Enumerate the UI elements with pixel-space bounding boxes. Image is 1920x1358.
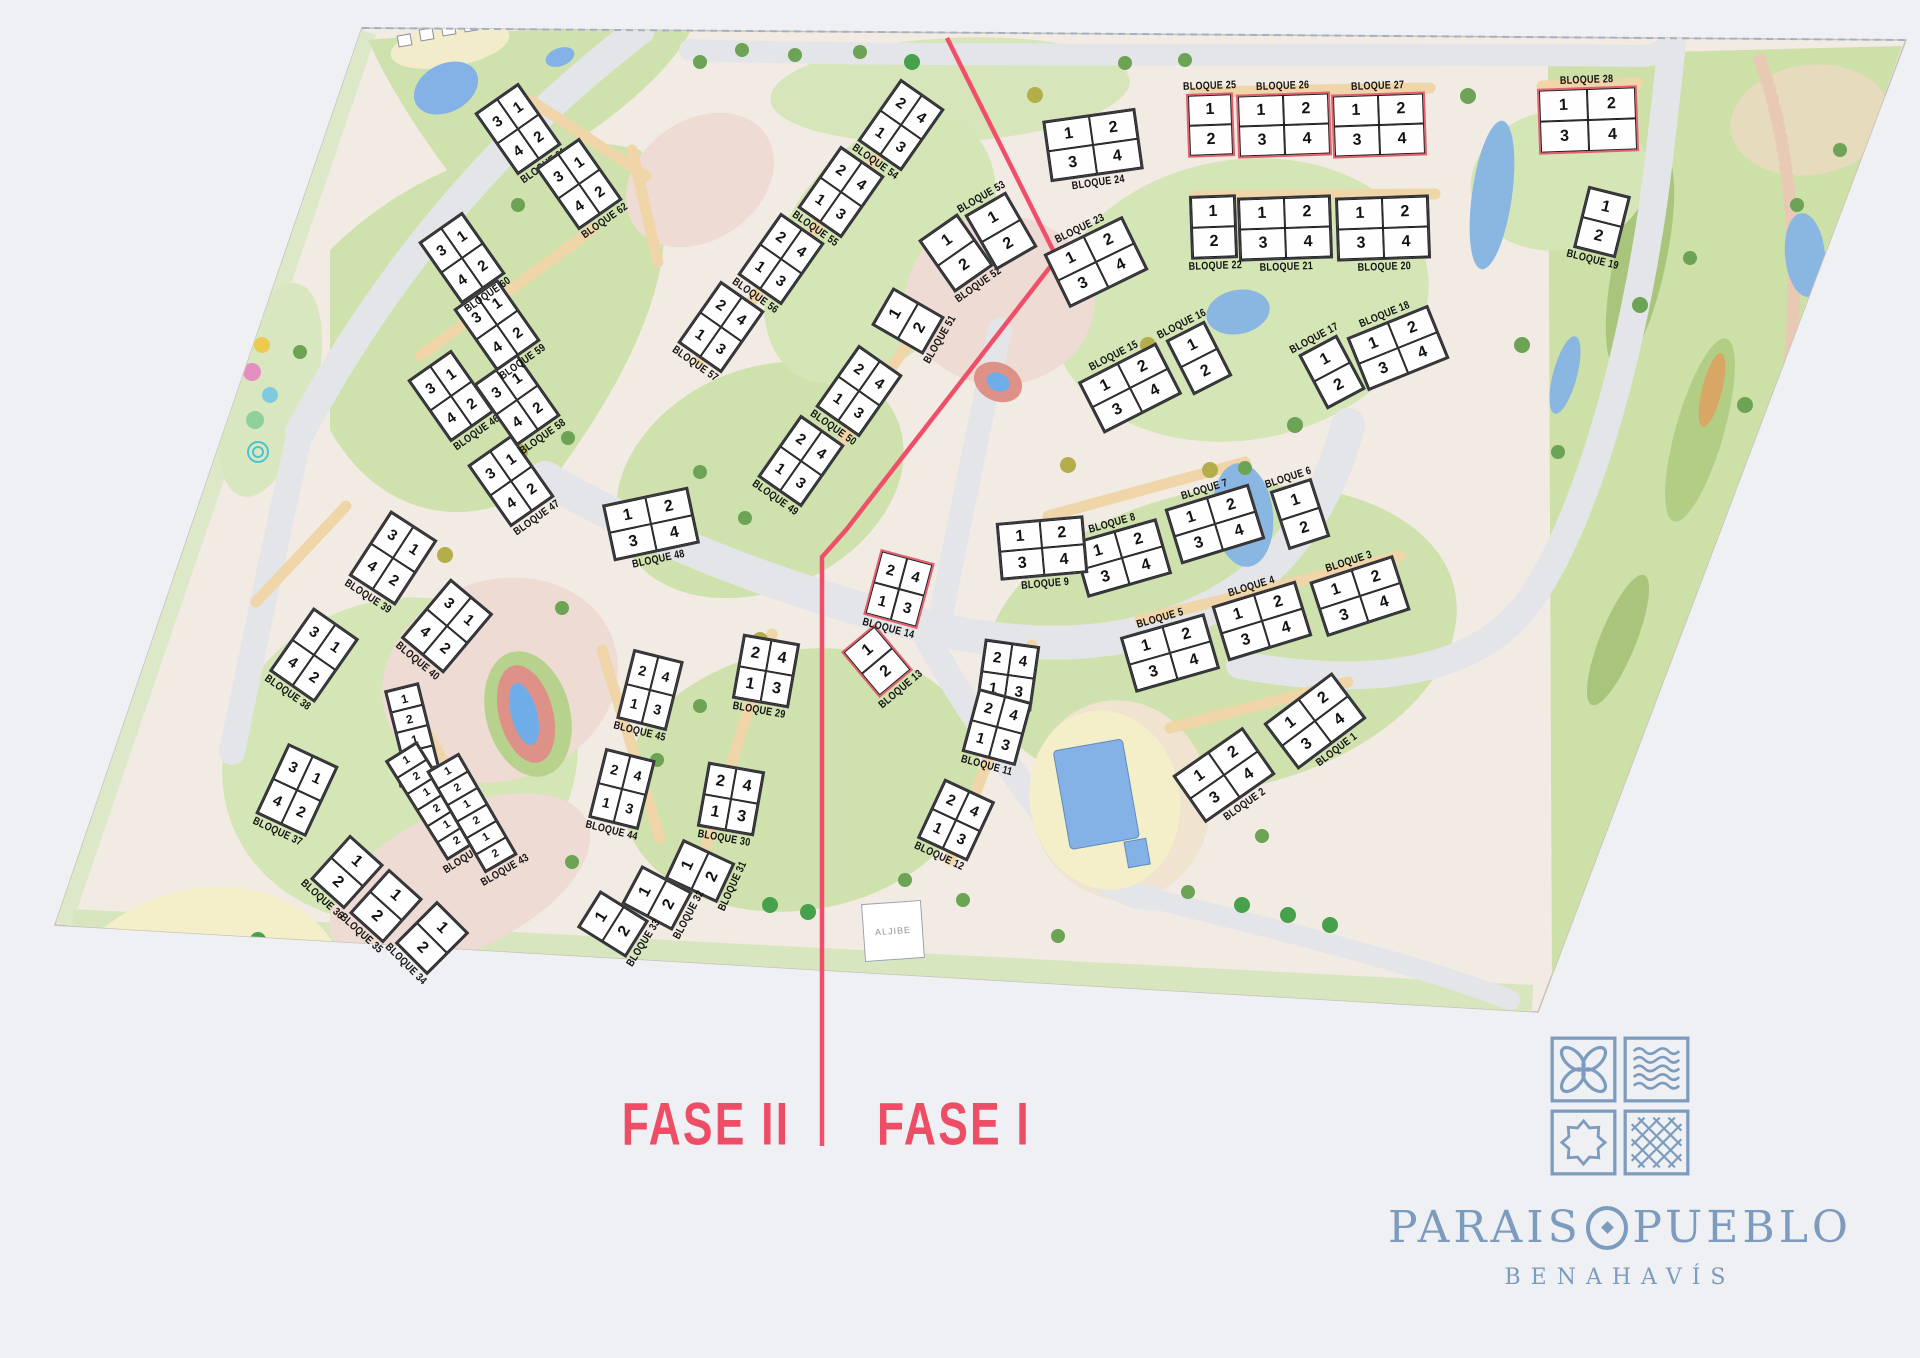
- lattice-tile-icon: [1623, 1109, 1690, 1176]
- bloque-label: BLOQUE 25: [1182, 79, 1236, 93]
- unit-2: 2: [1378, 93, 1424, 125]
- unit-4: 4: [1285, 226, 1331, 258]
- unit-3: 3: [1334, 125, 1380, 157]
- bloque-11[interactable]: 2413BLOQUE 11: [961, 688, 1032, 766]
- bloque-54[interactable]: 2413BLOQUE 54: [857, 78, 945, 171]
- bloque-5[interactable]: 1234BLOQUE 5: [1120, 613, 1221, 693]
- unit-3: 3: [726, 799, 758, 834]
- bloque-9[interactable]: 1234BLOQUE 9: [996, 515, 1089, 580]
- bloque-47[interactable]: 3142BLOQUE 47: [467, 434, 555, 527]
- unit-1: 1: [1190, 196, 1234, 227]
- bloque-12[interactable]: 2413BLOQUE 12: [917, 778, 996, 861]
- masterplan-canvas: 1234BLOQUE 11234BLOQUE 21234BLOQUE 31234…: [0, 0, 1920, 1358]
- unit-2: 2: [1192, 226, 1236, 257]
- aljibe-building: ALJIBE: [861, 900, 925, 962]
- unit-4: 4: [731, 768, 763, 803]
- bloque-2[interactable]: 1234BLOQUE 2: [1172, 727, 1276, 824]
- unit-2: 2: [1284, 196, 1330, 228]
- bloque-40[interactable]: 3142BLOQUE 40: [400, 578, 493, 674]
- bloque-4[interactable]: 1234BLOQUE 4: [1211, 580, 1312, 661]
- bloque-28[interactable]: 1234BLOQUE 28: [1537, 85, 1639, 154]
- bloque-50[interactable]: 2413BLOQUE 50: [815, 344, 903, 437]
- bloque-38[interactable]: 3142BLOQUE 38: [269, 607, 360, 703]
- unit-1: 1: [1539, 89, 1588, 122]
- bloque-18[interactable]: 1234BLOQUE 18: [1346, 305, 1449, 392]
- unit-1: 1: [1187, 94, 1231, 125]
- bloque-3[interactable]: 1234BLOQUE 3: [1309, 555, 1411, 637]
- unit-3: 3: [1540, 120, 1589, 153]
- unit-1: 1: [1333, 95, 1379, 127]
- bloque-39[interactable]: 3142BLOQUE 39: [348, 510, 437, 606]
- bloque-26[interactable]: 1234BLOQUE 26: [1236, 91, 1332, 158]
- brand-name-right: PUEBLO: [1632, 1202, 1852, 1253]
- bloque-44[interactable]: 2413BLOQUE 44: [588, 748, 656, 830]
- brand-wordmark: PARAISPUEBLO: [1388, 1202, 1852, 1253]
- unit-4: 4: [1383, 226, 1429, 258]
- bloque-25[interactable]: 12BLOQUE 25: [1185, 92, 1234, 158]
- bloque-1[interactable]: 1234BLOQUE 1: [1263, 672, 1367, 770]
- bloque-30[interactable]: 2413BLOQUE 30: [697, 761, 766, 836]
- unit-2: 2: [1189, 124, 1233, 155]
- unit-4: 4: [1284, 123, 1330, 155]
- bloque-14[interactable]: 2413BLOQUE 14: [863, 549, 935, 629]
- fase2-label: FASE II: [622, 1090, 791, 1159]
- unit-4: 4: [1008, 644, 1038, 678]
- unit-4: 4: [1379, 123, 1425, 155]
- unit-4: 4: [1093, 139, 1142, 174]
- unit-3: 3: [1000, 548, 1044, 579]
- fase1-label: FASE I: [877, 1090, 1031, 1159]
- bloque-label: BLOQUE 26: [1256, 79, 1310, 93]
- unit-4: 4: [766, 640, 798, 675]
- unit-3: 3: [1240, 228, 1286, 260]
- bloque-60[interactable]: 3142BLOQUE 60: [418, 211, 506, 304]
- bloque-24[interactable]: 1234BLOQUE 24: [1042, 108, 1144, 182]
- unit-2: 2: [1382, 196, 1428, 228]
- bloque-6[interactable]: 12BLOQUE 6: [1269, 478, 1330, 551]
- bloque-7[interactable]: 1234BLOQUE 7: [1164, 483, 1265, 564]
- brand-o-icon: [1586, 1206, 1629, 1250]
- bloque-45[interactable]: 2413BLOQUE 45: [616, 649, 684, 731]
- unit-3: 3: [1239, 125, 1285, 157]
- brand-subtitle: BENAHAVÍS: [1388, 1265, 1852, 1290]
- bloque-label: BLOQUE 28: [1560, 73, 1614, 87]
- bloque-29[interactable]: 2413BLOQUE 29: [732, 633, 801, 708]
- bloque-21[interactable]: 1234BLOQUE 21: [1237, 194, 1333, 261]
- bloque-15[interactable]: 1234BLOQUE 15: [1078, 342, 1183, 434]
- unit-4: 4: [1588, 118, 1637, 151]
- aljibe-label: ALJIBE: [875, 925, 912, 937]
- bloque-48[interactable]: 1234BLOQUE 48: [602, 486, 700, 561]
- brand-logo: PARAISPUEBLO BENAHAVÍS: [1388, 1036, 1852, 1290]
- unit-4: 4: [1042, 544, 1086, 575]
- bloque-27[interactable]: 1234BLOQUE 27: [1331, 91, 1427, 158]
- petal-tile-icon: [1550, 1036, 1617, 1103]
- bloque-51[interactable]: 12BLOQUE 51: [871, 287, 945, 355]
- bloque-37[interactable]: 3142BLOQUE 37: [255, 743, 339, 837]
- unit-2: 2: [1040, 517, 1084, 548]
- bloque-23[interactable]: 1234BLOQUE 23: [1043, 216, 1148, 309]
- logo-tiles: [1550, 1036, 1690, 1176]
- waves-tile-icon: [1623, 1036, 1690, 1103]
- unit-1: 1: [1238, 95, 1284, 127]
- unit-3: 3: [1048, 145, 1097, 180]
- unit-3: 3: [1338, 228, 1384, 260]
- bloque-label: BLOQUE 21: [1259, 260, 1313, 274]
- bloque-22[interactable]: 12BLOQUE 22: [1188, 194, 1237, 260]
- brand-name-left: PARAIS: [1388, 1202, 1582, 1253]
- unit-3: 3: [761, 671, 793, 706]
- unit-2: 2: [1587, 87, 1636, 120]
- bloque-19[interactable]: 12BLOQUE 19: [1573, 186, 1631, 259]
- bloque-label: BLOQUE 27: [1351, 79, 1405, 93]
- unit-1: 1: [1337, 198, 1383, 230]
- bloque-label: BLOQUE 22: [1187, 259, 1241, 273]
- bloque-label: BLOQUE 20: [1357, 260, 1411, 274]
- star-tile-icon: [1550, 1109, 1617, 1176]
- bloque-20[interactable]: 1234BLOQUE 20: [1335, 194, 1431, 261]
- unit-2: 2: [1283, 93, 1329, 125]
- unit-1: 1: [998, 521, 1042, 552]
- unit-1: 1: [1239, 198, 1285, 230]
